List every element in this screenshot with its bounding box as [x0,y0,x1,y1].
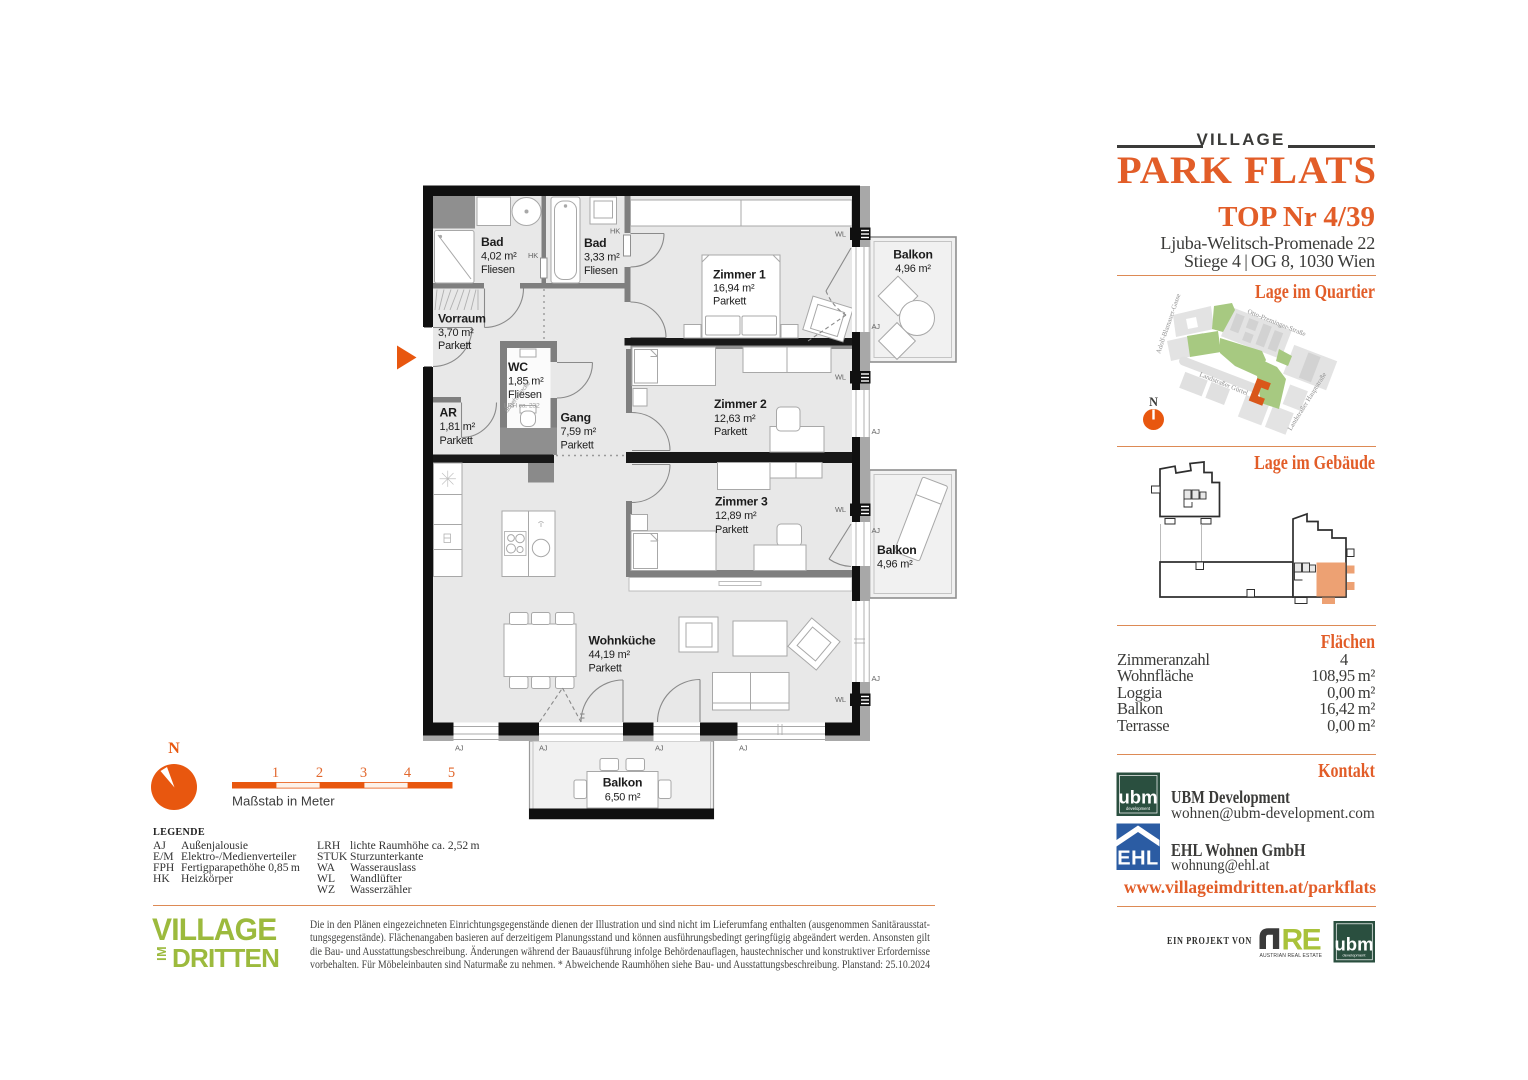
svg-text:AJ: AJ [872,674,881,683]
svg-text:7,59 m²: 7,59 m² [561,426,597,438]
svg-text:Parkett: Parkett [715,524,748,536]
svg-text:Fliesen: Fliesen [584,265,618,277]
svg-text:12,63 m²: 12,63 m² [714,413,756,425]
svg-text:6,50 m²: 6,50 m² [605,792,641,804]
svg-text:4,96 m²: 4,96 m² [895,263,931,275]
svg-text:WL: WL [835,373,846,382]
svg-text:12,89 m²: 12,89 m² [715,510,757,522]
svg-text:4,96 m²: 4,96 m² [877,559,913,571]
svg-text:Fliesen: Fliesen [481,264,515,276]
svg-text:HK: HK [610,227,620,236]
svg-text:N: N [168,740,180,757]
svg-text:ubm: ubm [1118,787,1157,808]
svg-text:44,19 m²: 44,19 m² [589,649,631,661]
svg-text:Wohnküche: Wohnküche [589,634,656,648]
svg-text:4: 4 [404,765,412,781]
svg-text:3,33 m²: 3,33 m² [584,252,620,264]
svg-text:WL: WL [835,695,846,704]
svg-text:Parkett: Parkett [561,439,594,451]
svg-text:Parkett: Parkett [589,663,622,675]
svg-text:AJ: AJ [539,744,548,753]
svg-text:4,02 m²: 4,02 m² [481,251,517,263]
svg-text:2: 2 [316,765,323,781]
svg-text:3: 3 [360,765,367,781]
svg-text:Balkon: Balkon [603,776,642,790]
svg-text:development: development [1126,806,1151,811]
svg-text:Balkon: Balkon [877,543,916,557]
svg-text:1,81 m²: 1,81 m² [440,421,476,433]
svg-text:Zimmer 3: Zimmer 3 [715,495,768,509]
svg-text:AJ: AJ [739,744,748,753]
svg-text:Zimmer 2: Zimmer 2 [714,397,767,411]
svg-text:WL: WL [835,230,846,239]
svg-text:Vorraum: Vorraum [438,312,486,326]
svg-text:development: development [1343,953,1367,958]
svg-text:RE: RE [1282,924,1321,957]
svg-text:EHL: EHL [1117,848,1159,870]
svg-text:Bad: Bad [584,236,606,250]
svg-text:16,94 m²: 16,94 m² [713,283,755,295]
svg-text:AJ: AJ [872,322,881,331]
svg-text:Bad: Bad [481,235,503,249]
svg-text:AJ: AJ [655,744,664,753]
svg-text:5: 5 [448,765,455,781]
svg-text:Zimmer 1: Zimmer 1 [713,268,766,282]
svg-text:AUSTRIAN REAL ESTATE: AUSTRIAN REAL ESTATE [1260,953,1323,959]
svg-text:ubm: ubm [1334,934,1373,955]
svg-text:N: N [1149,395,1158,409]
svg-text:AR: AR [440,406,458,420]
svg-text:Balkon: Balkon [893,248,932,262]
svg-text:1: 1 [272,765,279,781]
svg-text:Parkett: Parkett [714,426,747,438]
svg-text:Parkett: Parkett [440,435,473,447]
svg-text:Parkett: Parkett [713,296,746,308]
svg-text:HK: HK [528,251,538,260]
svg-text:Maßstab in Meter: Maßstab in Meter [232,794,335,809]
svg-text:WL: WL [835,505,846,514]
svg-text:Parkett: Parkett [438,340,471,352]
svg-text:AJ: AJ [455,744,464,753]
svg-text:Gang: Gang [561,411,591,425]
svg-text:AJ: AJ [872,427,881,436]
svg-text:3,70 m²: 3,70 m² [438,327,474,339]
svg-text:WC: WC [508,360,528,374]
svg-text:AJ: AJ [872,526,881,535]
